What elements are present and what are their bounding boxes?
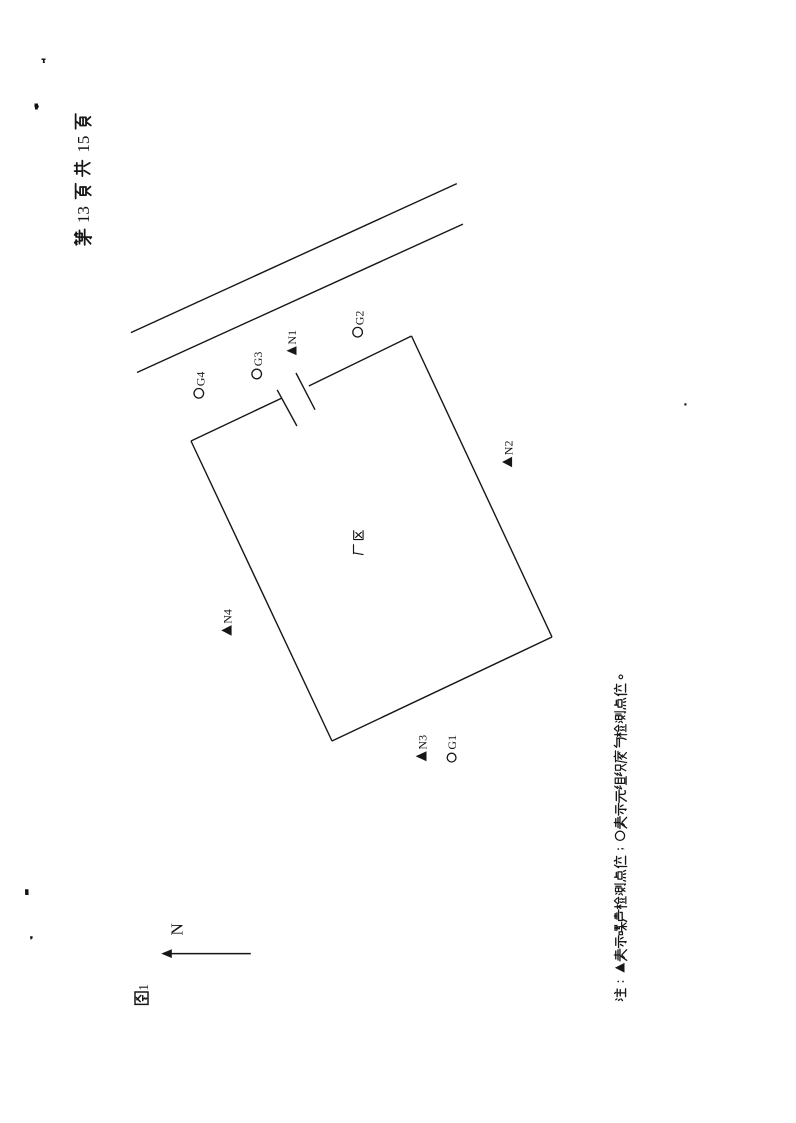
svg-text:13: 13 xyxy=(74,206,93,223)
svg-text:N3: N3 xyxy=(415,735,429,750)
svg-text:N2: N2 xyxy=(501,441,515,456)
svg-text:G3: G3 xyxy=(251,352,265,367)
svg-text:N: N xyxy=(168,923,187,935)
svg-text:1: 1 xyxy=(136,984,151,991)
svg-text:G1: G1 xyxy=(445,735,459,750)
svg-text:G2: G2 xyxy=(353,311,367,326)
svg-text:N1: N1 xyxy=(285,330,299,345)
svg-text:N4: N4 xyxy=(220,609,234,624)
svg-text:15: 15 xyxy=(74,136,93,153)
svg-text:G4: G4 xyxy=(193,372,207,387)
